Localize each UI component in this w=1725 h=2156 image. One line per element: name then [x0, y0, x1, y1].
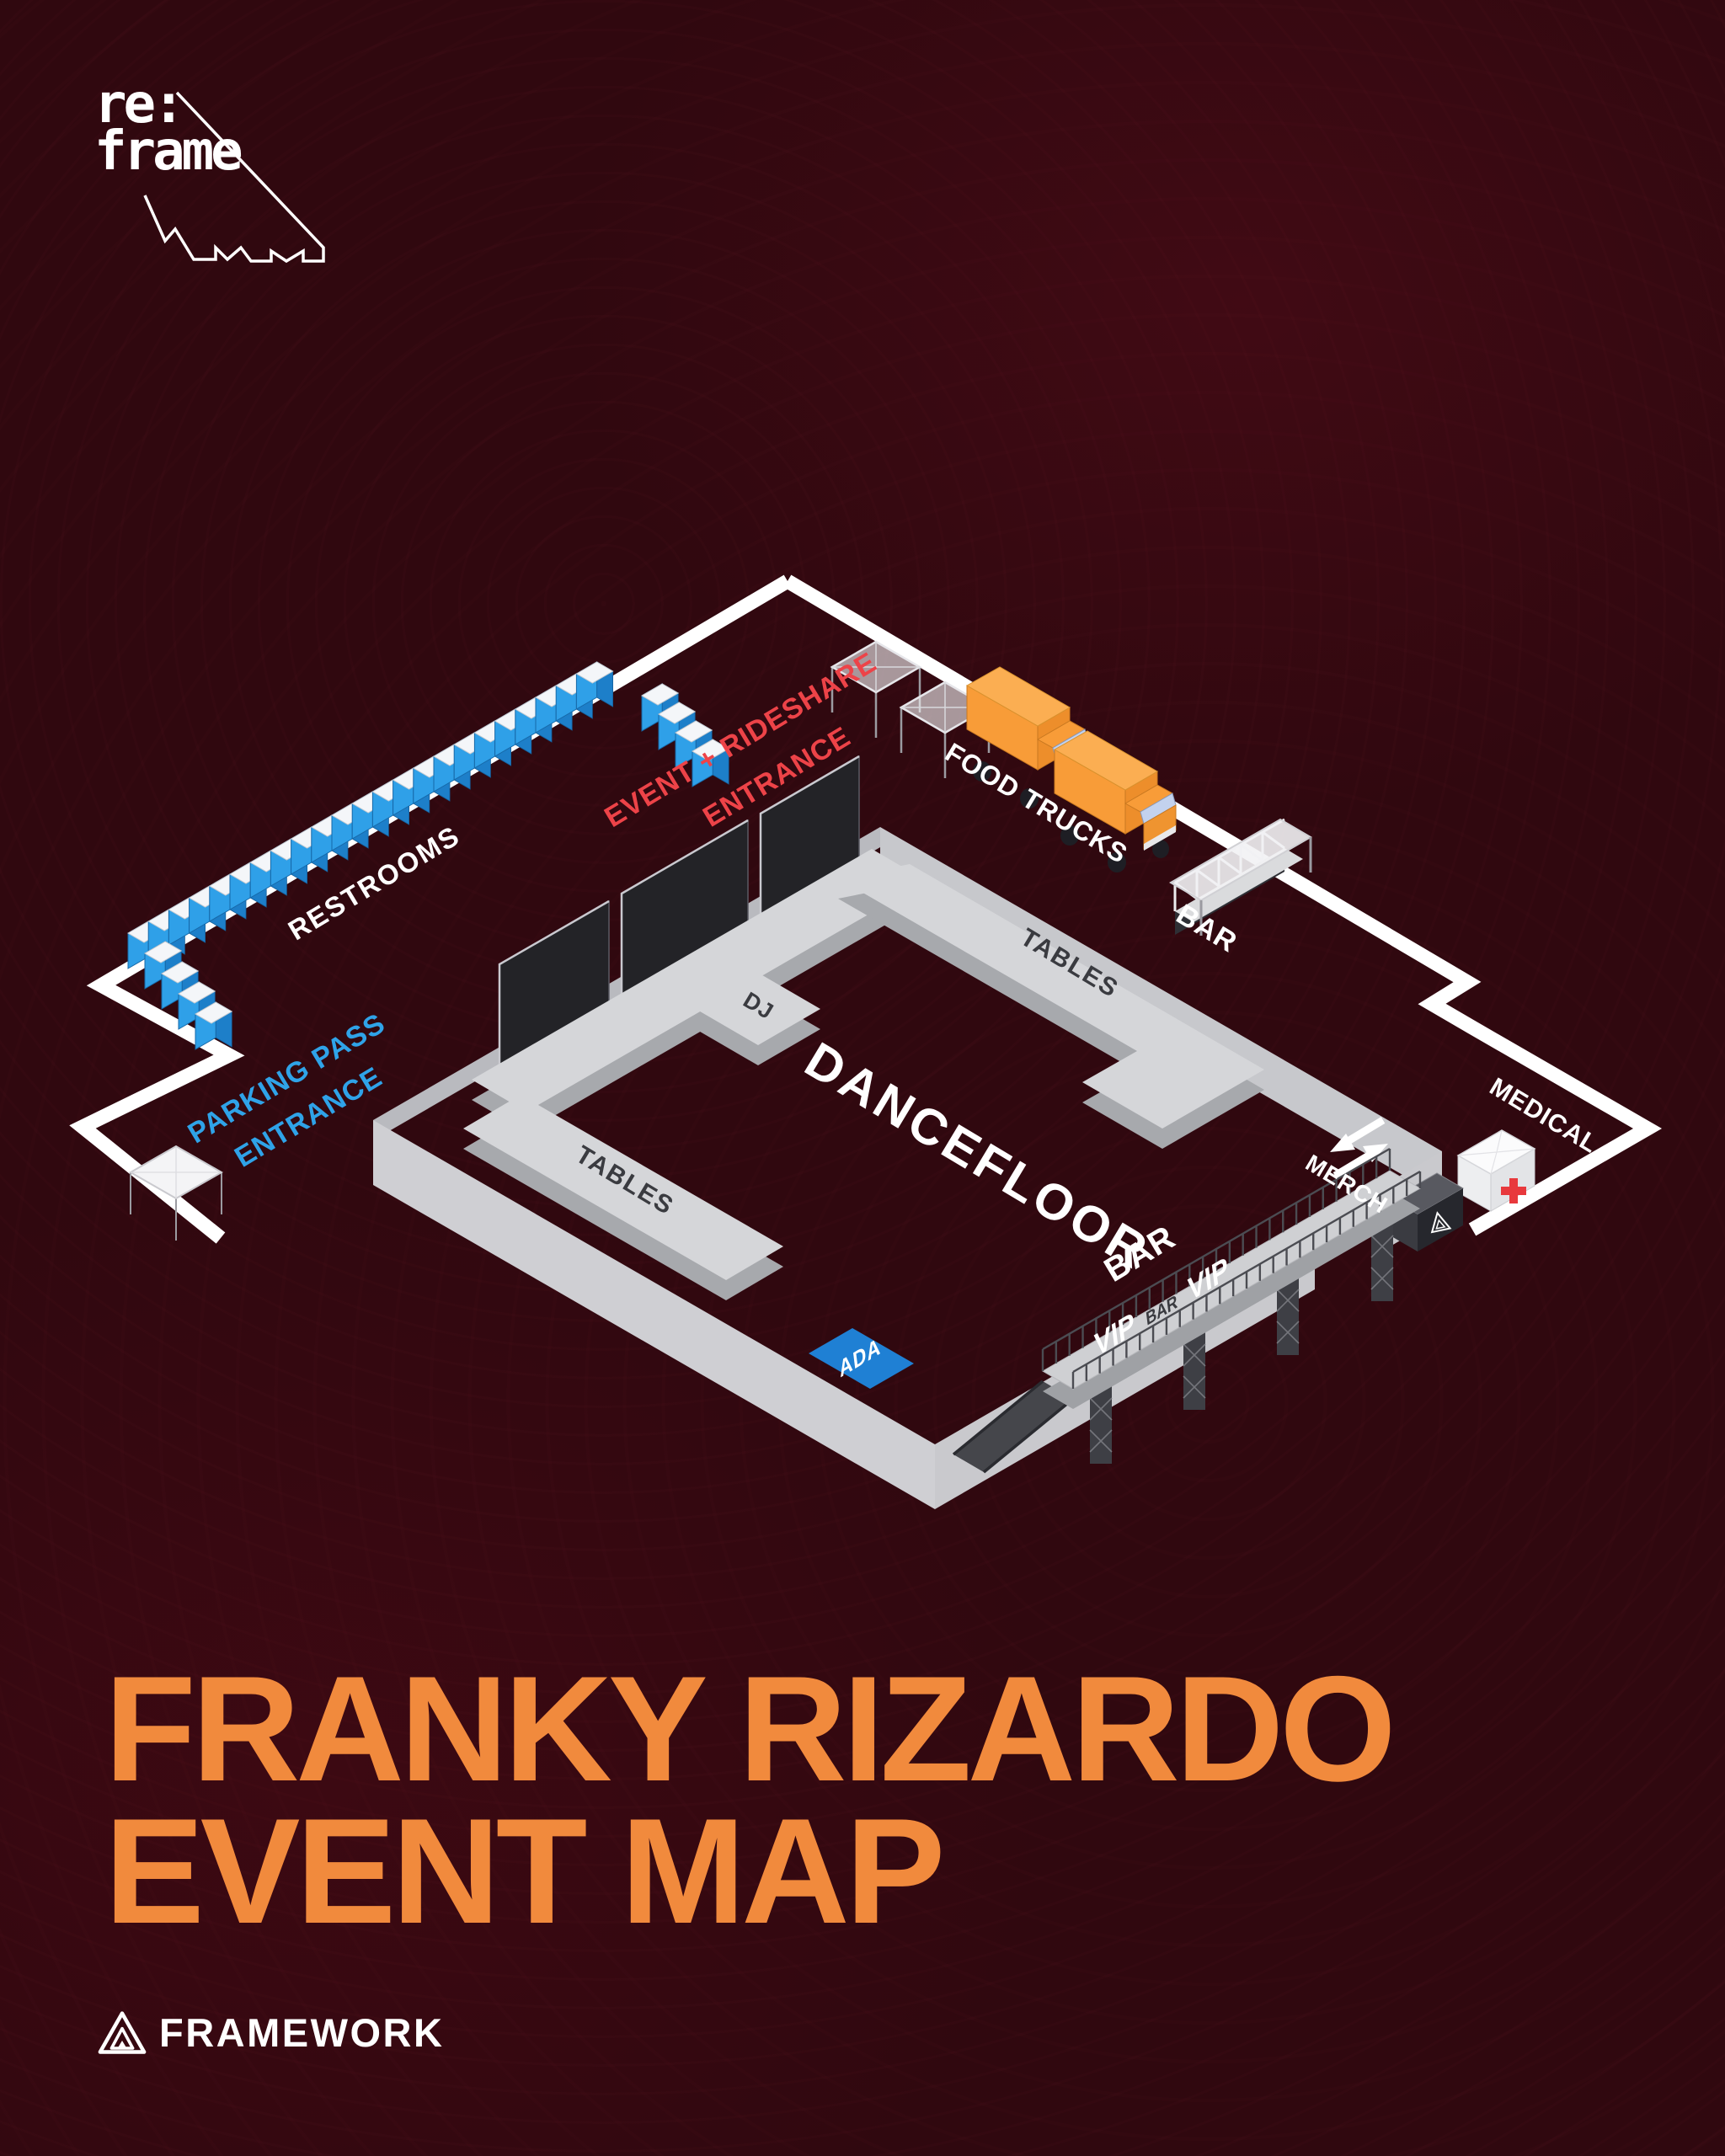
vip-leg-tower — [1090, 1386, 1112, 1464]
poster: RESTROOMS — [0, 0, 1725, 2156]
title-line2: EVENT MAP — [104, 1800, 1392, 1942]
dancefloor-label: DANCEFLOOR — [796, 1031, 1160, 1280]
framework-triangle-icon — [98, 2010, 147, 2056]
page-title: FRANKY RIZARDO EVENT MAP — [104, 1657, 1392, 1942]
vip-leg-tower — [1183, 1332, 1205, 1410]
ada-sign: ADA — [809, 1328, 914, 1389]
vip-leg-tower — [1371, 1224, 1393, 1301]
reframe-logo: re: frame — [94, 81, 355, 283]
framework-wordmark: FRAMEWORK — [159, 2009, 444, 2056]
framework-logo: FRAMEWORK — [98, 2009, 444, 2056]
reframe-logo-line2: frame — [94, 128, 355, 175]
title-line1: FRANKY RIZARDO — [104, 1657, 1392, 1800]
